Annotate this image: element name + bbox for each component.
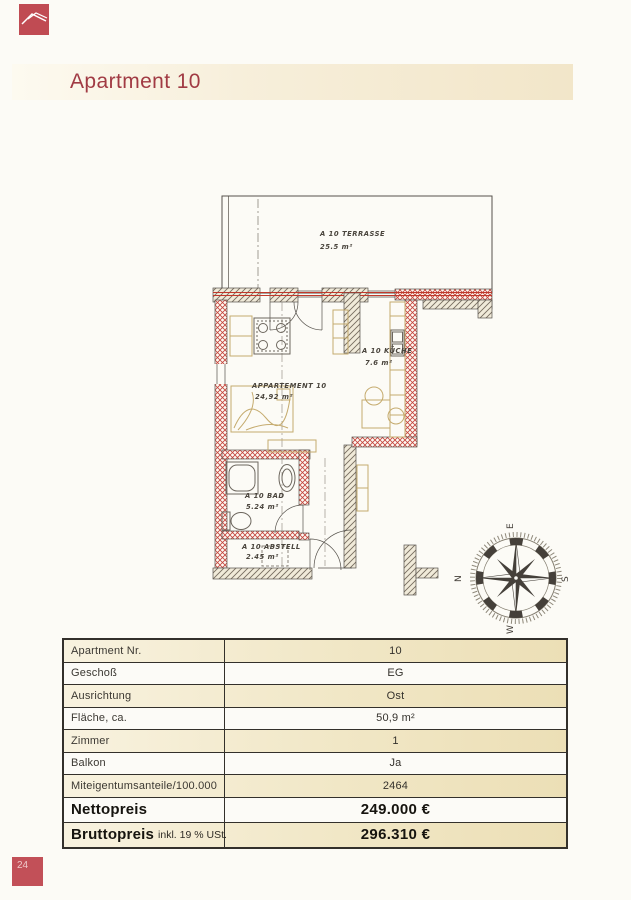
row-value: 50,9 m² <box>225 708 566 730</box>
svg-text:7.6 m²: 7.6 m² <box>365 359 392 367</box>
kitchen-counter-icon <box>390 302 405 437</box>
svg-text:APPARTEMENT 10: APPARTEMENT 10 <box>251 382 327 390</box>
svg-text:A 10 KÜCHE: A 10 KÜCHE <box>361 346 412 355</box>
compass-rose: E S W N <box>454 523 571 634</box>
bathtub-icon <box>226 462 258 494</box>
row-label: Bruttopreisinkl. 19 % USt. <box>64 823 225 847</box>
svg-text:A 10 TERRASSE: A 10 TERRASSE <box>319 230 385 238</box>
row-value: EG <box>225 663 566 685</box>
page-number-badge: 24 <box>12 857 43 886</box>
compass-letter-left: N <box>454 575 464 582</box>
svg-text:5.24 m²: 5.24 m² <box>246 503 279 511</box>
row-value: 10 <box>225 640 566 662</box>
compass-letter-right: S <box>561 576 571 582</box>
row-label: Apartment Nr. <box>64 640 225 662</box>
furniture <box>222 302 405 566</box>
kitchen-table-icon <box>362 387 404 428</box>
company-logo <box>19 4 49 35</box>
svg-text:A 10 BAD: A 10 BAD <box>244 492 285 500</box>
spec-table: Apartment Nr.10GeschoßEGAusrichtungOstFl… <box>62 638 568 849</box>
row-value: 249.000 € <box>225 798 566 822</box>
table-row: BalkonJa <box>64 753 566 776</box>
svg-text:24,92 m²: 24,92 m² <box>255 393 293 401</box>
table-row: Nettopreis249.000 € <box>64 798 566 823</box>
header-bar: Apartment 10 <box>12 64 573 100</box>
floor-plan: A 10 TERRASSE 25.5 m² <box>200 188 585 648</box>
table-row: GeschoßEG <box>64 663 566 686</box>
svg-text:A 10 ABSTELL: A 10 ABSTELL <box>241 543 301 551</box>
storage-label: A 10 ABSTELL 2.45 m² <box>241 543 301 561</box>
terrace-outline <box>222 196 492 293</box>
page-number: 24 <box>17 860 28 871</box>
row-label: Ausrichtung <box>64 685 225 707</box>
cabinet-icon <box>230 316 252 356</box>
table-row: AusrichtungOst <box>64 685 566 708</box>
row-value: 296.310 € <box>225 823 566 847</box>
row-label: Miteigentumsanteile/100.000 <box>64 775 225 797</box>
compass-letter-bottom: W <box>506 625 516 634</box>
row-value: Ja <box>225 753 566 775</box>
stove-icon <box>254 318 290 354</box>
svg-text:25.5 m²: 25.5 m² <box>320 243 353 251</box>
row-label: Balkon <box>64 753 225 775</box>
compass-letter-top: E <box>506 523 516 529</box>
svg-text:2.45 m²: 2.45 m² <box>246 553 279 561</box>
bath-sink-icon <box>279 465 295 492</box>
table-row: Zimmer1 <box>64 730 566 753</box>
page-title: Apartment 10 <box>70 70 201 94</box>
living-label: APPARTEMENT 10 24,92 m² <box>251 382 327 401</box>
exterior-wall-left <box>214 300 229 568</box>
row-label: Geschoß <box>64 663 225 685</box>
row-value: 2464 <box>225 775 566 797</box>
table-row: Miteigentumsanteile/100.0002464 <box>64 775 566 798</box>
table-row: Bruttopreisinkl. 19 % USt.296.310 € <box>64 823 566 847</box>
hall-cabinet-icon <box>357 465 368 511</box>
table-row: Fläche, ca.50,9 m² <box>64 708 566 731</box>
bath-label: A 10 BAD 5.24 m² <box>244 492 285 511</box>
row-label: Zimmer <box>64 730 225 752</box>
axis-dashdot-line <box>282 302 325 566</box>
row-label: Nettopreis <box>64 798 225 822</box>
row-value: 1 <box>225 730 566 752</box>
table-row: Apartment Nr.10 <box>64 640 566 663</box>
row-value: Ost <box>225 685 566 707</box>
row-label: Fläche, ca. <box>64 708 225 730</box>
terrace-label: A 10 TERRASSE 25.5 m² <box>319 230 385 251</box>
